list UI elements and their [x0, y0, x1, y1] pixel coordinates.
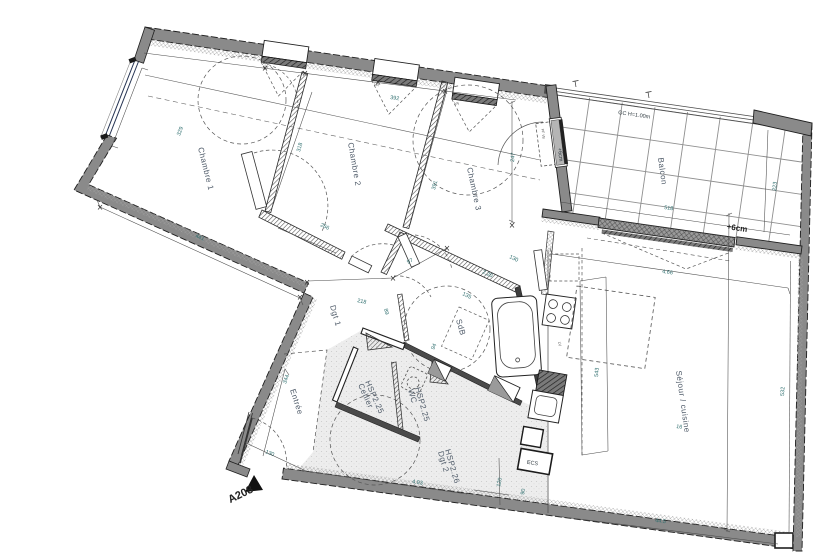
svg-text:532: 532 [780, 387, 786, 396]
svg-text:392: 392 [390, 95, 400, 102]
svg-text:518: 518 [664, 205, 674, 212]
svg-text:543: 543 [594, 367, 601, 377]
svg-text:247: 247 [510, 152, 517, 162]
svg-text:90: 90 [520, 488, 527, 495]
svg-text:223: 223 [772, 181, 779, 191]
